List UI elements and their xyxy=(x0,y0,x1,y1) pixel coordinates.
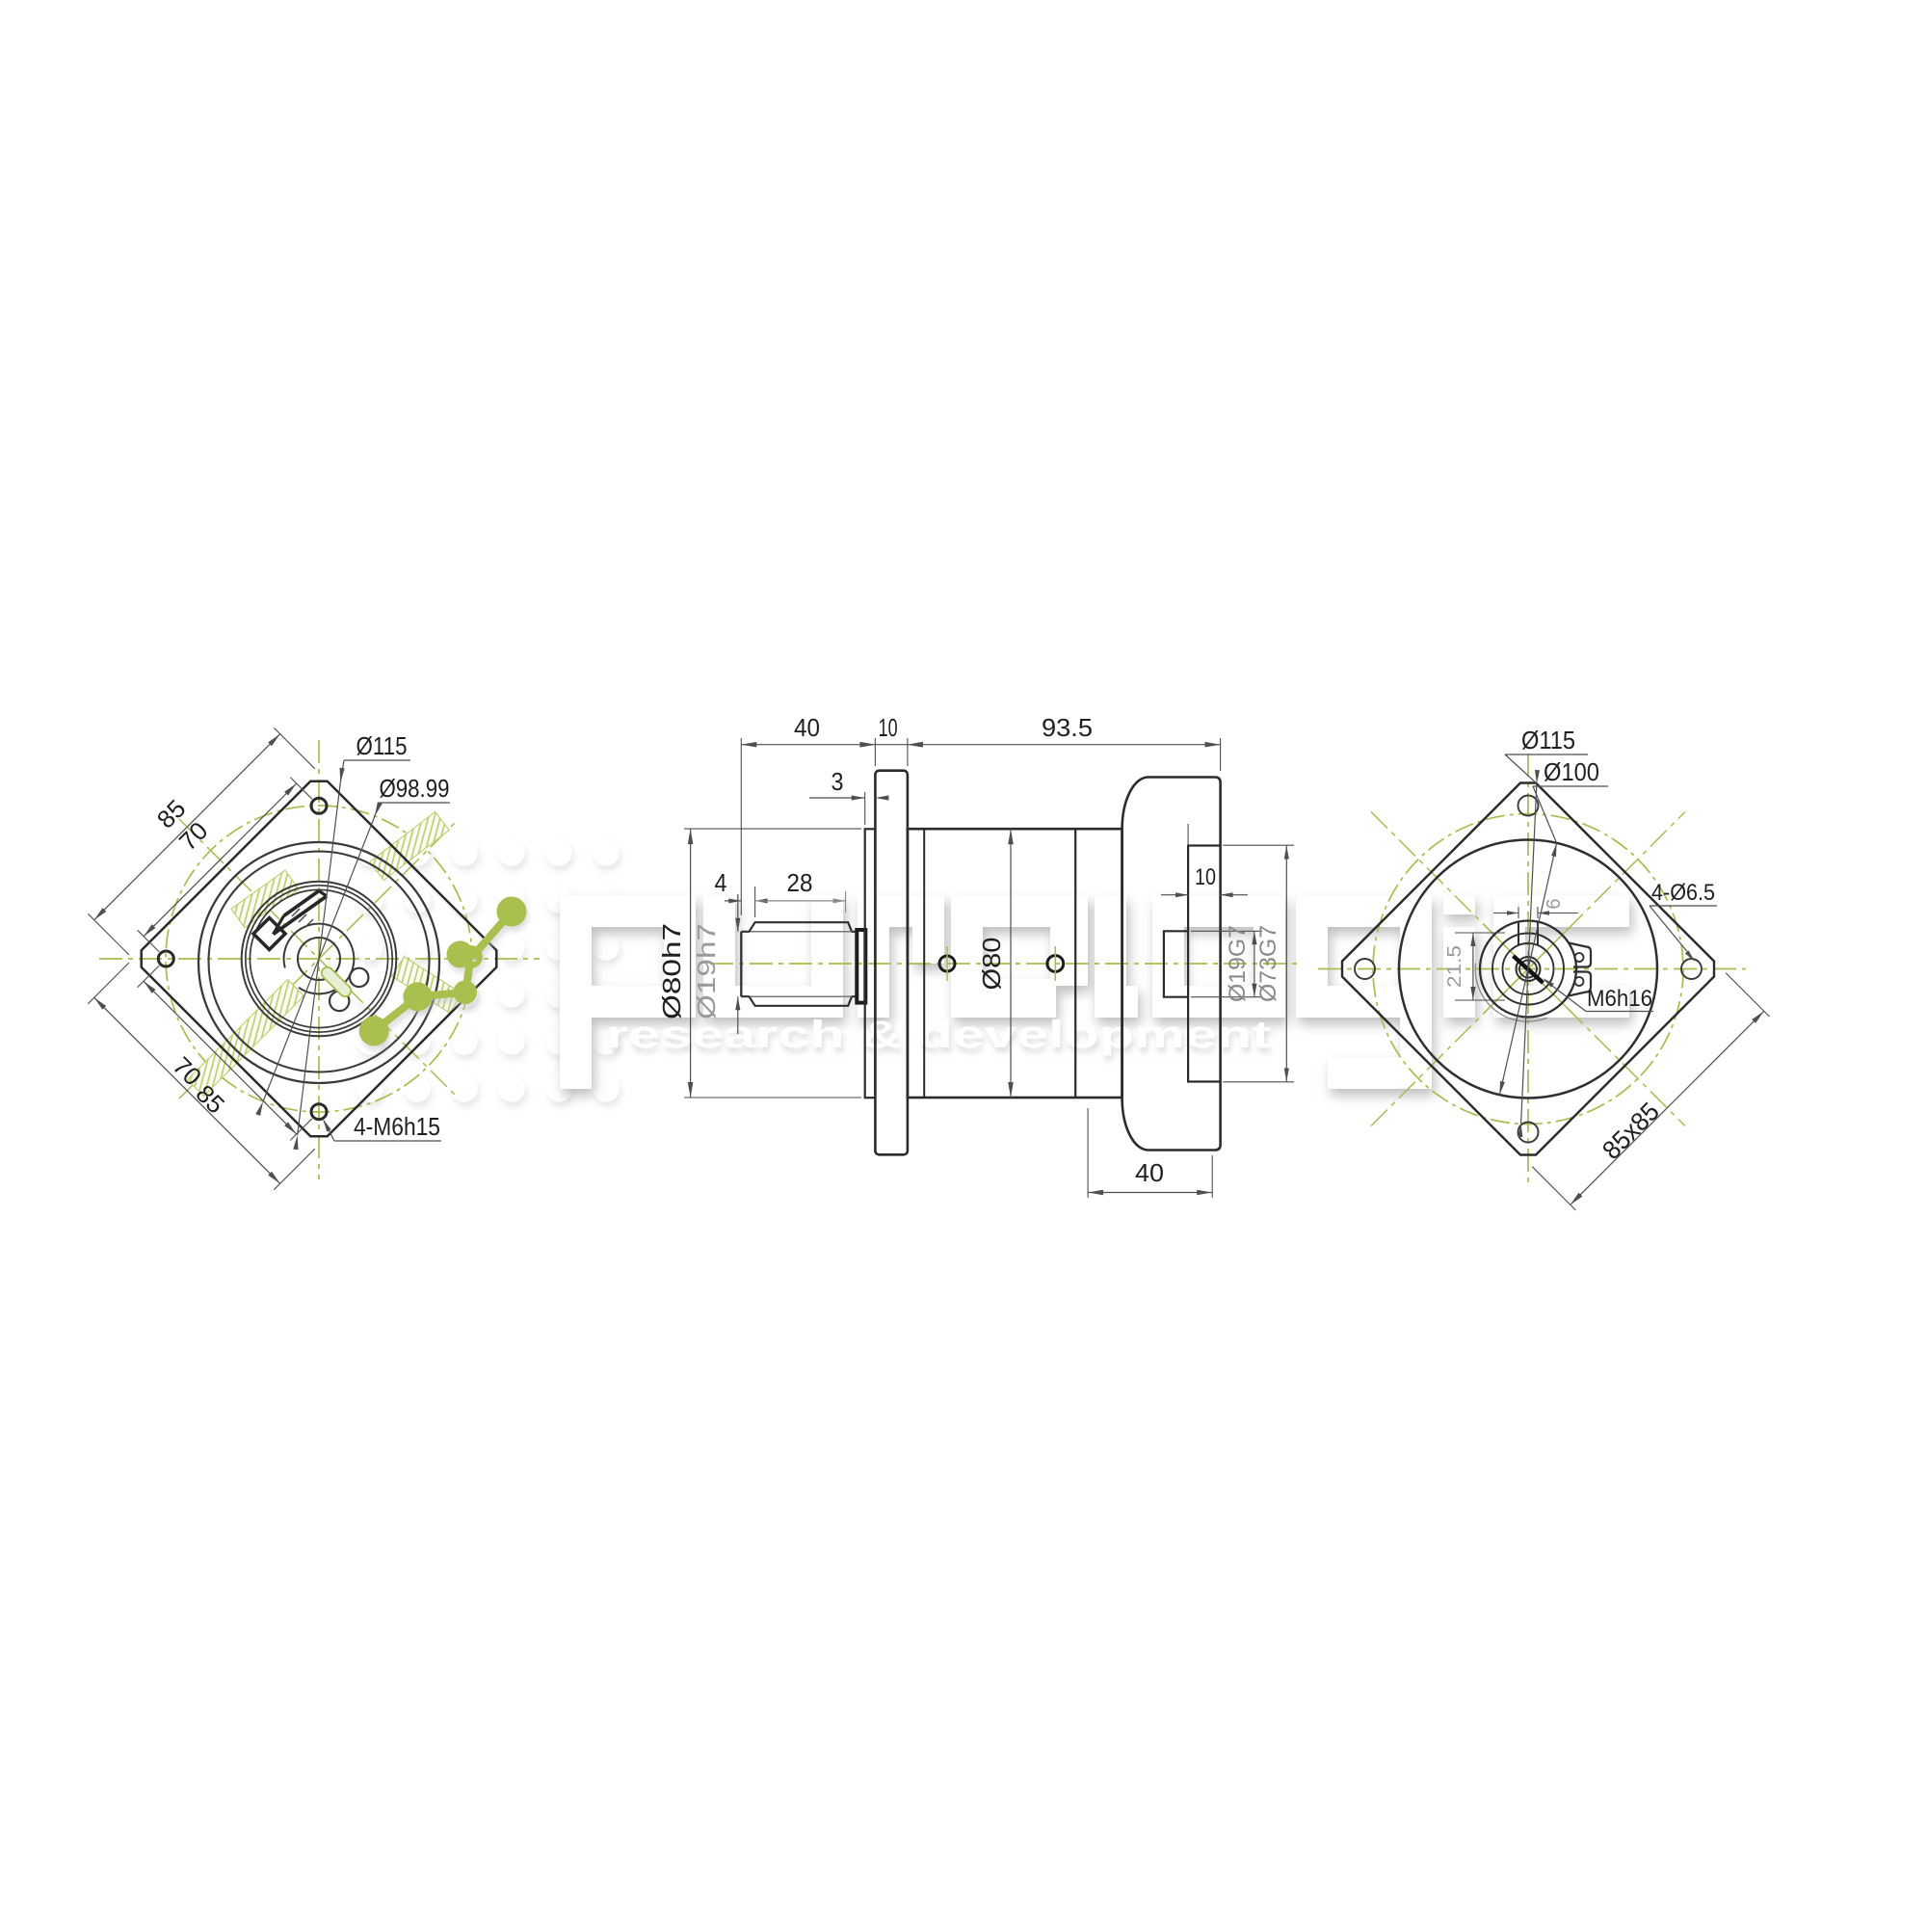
svg-text:Ø80: Ø80 xyxy=(977,938,1006,991)
svg-text:Ø19h7: Ø19h7 xyxy=(692,923,721,1019)
svg-text:Ø19G7: Ø19G7 xyxy=(1225,925,1251,1002)
svg-text:28: 28 xyxy=(787,868,813,897)
svg-text:4: 4 xyxy=(715,868,727,897)
svg-text:93.5: 93.5 xyxy=(1042,713,1093,742)
svg-text:Ø100: Ø100 xyxy=(1544,757,1599,786)
svg-text:40: 40 xyxy=(1135,1158,1164,1187)
svg-text:6: 6 xyxy=(1544,898,1565,909)
svg-text:40: 40 xyxy=(794,713,820,742)
svg-text:Ø115: Ø115 xyxy=(1521,726,1575,754)
svg-text:4-Ø6.5: 4-Ø6.5 xyxy=(1651,880,1715,906)
svg-text:Ø98.99: Ø98.99 xyxy=(380,774,450,803)
svg-text:10: 10 xyxy=(1195,864,1216,890)
svg-text:Ø73G7: Ø73G7 xyxy=(1255,925,1281,1002)
svg-text:10: 10 xyxy=(879,713,898,742)
svg-text:21.5: 21.5 xyxy=(1444,945,1465,988)
svg-text:M6h16: M6h16 xyxy=(1587,986,1652,1012)
svg-text:3: 3 xyxy=(832,767,844,796)
svg-text:Ø115: Ø115 xyxy=(356,731,408,760)
svg-text:4-M6h15: 4-M6h15 xyxy=(354,1112,440,1141)
svg-text:Ø80h7: Ø80h7 xyxy=(657,923,686,1019)
